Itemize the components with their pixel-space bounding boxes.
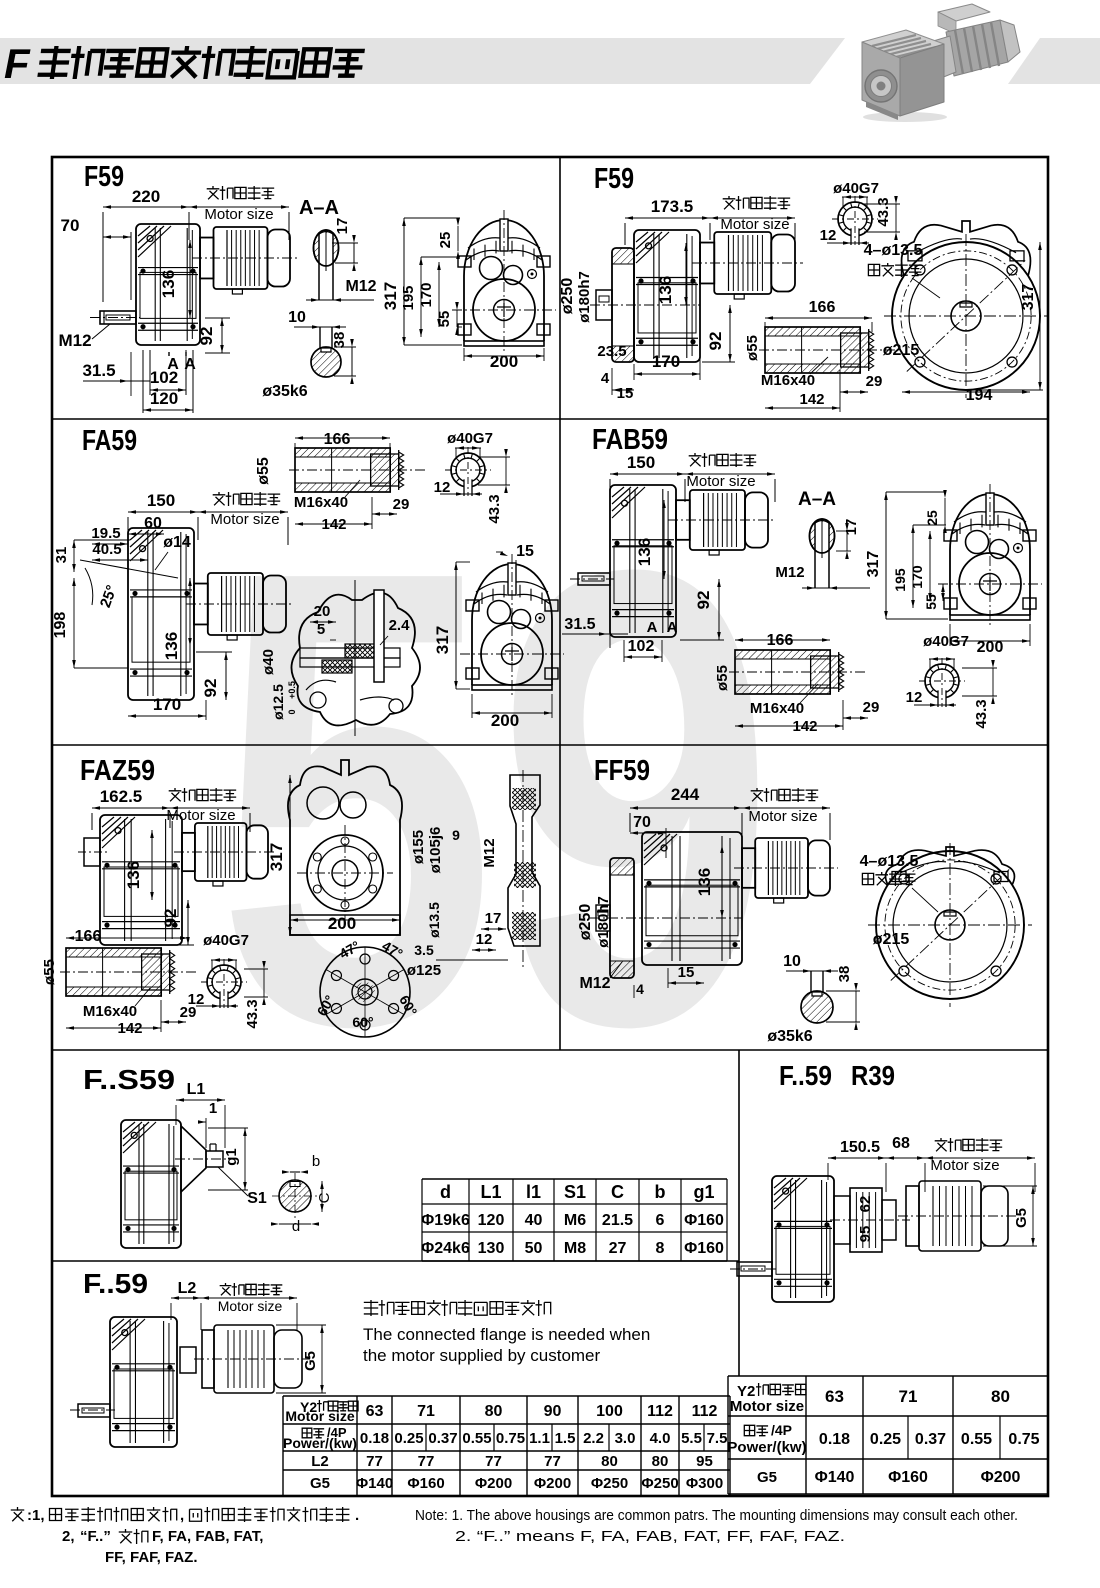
svg-text:ø125: ø125: [407, 962, 441, 979]
svg-text:ø40G7: ø40G7: [447, 430, 493, 447]
svg-text:77: 77: [418, 1453, 435, 1470]
svg-text:112: 112: [692, 1403, 718, 1420]
svg-text:b: b: [312, 1153, 320, 1170]
svg-text:200: 200: [491, 711, 519, 730]
svg-text:15: 15: [516, 543, 534, 560]
svg-text:92: 92: [706, 332, 725, 351]
svg-text:the motor supplied by customer: the motor supplied by customer: [363, 1346, 601, 1365]
svg-text:M16x40: M16x40: [761, 372, 815, 389]
svg-text:136: 136: [695, 868, 714, 896]
svg-text:70: 70: [61, 216, 80, 235]
svg-text:92: 92: [197, 327, 216, 346]
svg-text:15: 15: [617, 385, 634, 402]
svg-text:L2: L2: [178, 1280, 197, 1297]
svg-text:L1: L1: [480, 1182, 501, 1202]
svg-text:317: 317: [267, 843, 286, 871]
svg-text:G5: G5: [757, 1469, 777, 1486]
svg-text:77: 77: [366, 1453, 383, 1470]
svg-text:77: 77: [485, 1453, 502, 1470]
svg-text:6: 6: [656, 1212, 665, 1229]
svg-text::1,: :1,: [27, 1507, 45, 1524]
svg-text:31: 31: [53, 547, 70, 564]
svg-text:Motor size: Motor size: [730, 1398, 804, 1415]
svg-text:l1: l1: [526, 1182, 541, 1202]
svg-text:FA59: FA59: [82, 425, 137, 457]
svg-text:F, FA, FAB, FAT,: F, FA, FAB, FAT,: [152, 1528, 263, 1545]
svg-text:Motor size: Motor size: [748, 808, 817, 825]
svg-text:2.2: 2.2: [583, 1430, 604, 1447]
svg-text:0.75: 0.75: [496, 1430, 525, 1447]
svg-text:17: 17: [334, 218, 351, 235]
svg-text:2,: 2,: [62, 1528, 75, 1545]
svg-text:Φ160: Φ160: [684, 1212, 724, 1229]
svg-text:4: 4: [636, 981, 644, 997]
svg-text:F: F: [4, 40, 31, 87]
svg-text:27: 27: [609, 1240, 627, 1257]
svg-text:12: 12: [188, 991, 205, 1008]
svg-text:S1: S1: [247, 1190, 267, 1207]
svg-text:C: C: [316, 1192, 333, 1203]
svg-text:A: A: [184, 356, 196, 373]
svg-text:Power/(kw): Power/(kw): [727, 1439, 806, 1456]
svg-text:A: A: [167, 356, 179, 373]
svg-text:38: 38: [836, 966, 853, 983]
svg-text:A–A: A–A: [798, 489, 836, 510]
svg-text:77: 77: [544, 1453, 561, 1470]
svg-text:F..S59: F..S59: [83, 1064, 175, 1095]
svg-text:0.37: 0.37: [915, 1431, 946, 1448]
svg-text:ø55: ø55: [714, 665, 731, 691]
svg-text:43.3: 43.3: [244, 999, 261, 1028]
svg-text:Φ140: Φ140: [356, 1475, 393, 1492]
svg-text:F59: F59: [594, 163, 634, 195]
svg-text:80: 80: [485, 1403, 503, 1420]
svg-text:80: 80: [601, 1453, 618, 1470]
svg-text:195: 195: [400, 285, 417, 310]
svg-text:,: ,: [180, 1507, 184, 1524]
svg-text:ø215: ø215: [883, 342, 920, 359]
svg-text:166: 166: [324, 431, 351, 448]
svg-text:ø40: ø40: [260, 649, 277, 675]
svg-text:136: 136: [162, 632, 181, 660]
svg-text:FF, FAF, FAZ.: FF, FAF, FAZ.: [105, 1549, 198, 1566]
svg-text:Φ160: Φ160: [888, 1469, 928, 1486]
svg-text:198: 198: [52, 612, 69, 639]
svg-text:55: 55: [923, 594, 939, 610]
svg-text:120: 120: [478, 1212, 505, 1229]
svg-text:ø215: ø215: [873, 931, 910, 948]
svg-text:g1: g1: [693, 1182, 714, 1202]
svg-text:95: 95: [857, 1226, 874, 1243]
svg-text:142: 142: [799, 391, 824, 408]
svg-text:8: 8: [656, 1240, 665, 1257]
svg-text:20: 20: [314, 603, 331, 620]
svg-text:Motor size: Motor size: [210, 511, 279, 528]
svg-text:170: 170: [153, 695, 181, 714]
svg-text:M12: M12: [775, 564, 804, 581]
svg-text:130: 130: [478, 1240, 505, 1257]
svg-text:170: 170: [909, 565, 925, 589]
svg-text:d: d: [440, 1182, 451, 1202]
svg-text:Φ300: Φ300: [686, 1475, 723, 1492]
svg-text:Φ250: Φ250: [641, 1475, 678, 1492]
svg-text:Φ140: Φ140: [815, 1469, 855, 1486]
svg-text:0.25: 0.25: [394, 1430, 423, 1447]
svg-text:7.5: 7.5: [707, 1430, 728, 1447]
svg-text:ø55: ø55: [41, 959, 58, 985]
svg-text:5.5: 5.5: [681, 1430, 702, 1447]
svg-text:S1: S1: [564, 1182, 586, 1202]
svg-text:ø155: ø155: [410, 830, 427, 864]
svg-text:15: 15: [678, 964, 695, 981]
svg-text:3.5: 3.5: [414, 942, 434, 958]
svg-text:70: 70: [633, 814, 651, 831]
svg-text:M16x40: M16x40: [294, 494, 348, 511]
svg-text:.: .: [355, 1507, 359, 1524]
svg-text:M16x40: M16x40: [83, 1003, 137, 1020]
svg-text:92: 92: [694, 591, 713, 610]
svg-text:M12: M12: [481, 838, 498, 867]
svg-text:90: 90: [544, 1403, 562, 1420]
svg-text:120: 120: [150, 389, 178, 408]
svg-text:C: C: [611, 1182, 624, 1202]
svg-text:29: 29: [393, 496, 410, 513]
svg-text:FAB59: FAB59: [592, 424, 668, 456]
svg-text:Motor size: Motor size: [285, 1408, 354, 1424]
svg-text:Φ200: Φ200: [475, 1475, 512, 1492]
svg-text:12: 12: [906, 689, 923, 706]
svg-text:The connected flange is needed: The connected flange is needed when: [363, 1325, 650, 1344]
svg-text:17: 17: [485, 910, 502, 927]
svg-text:M12: M12: [345, 278, 376, 295]
svg-text:136: 136: [159, 270, 178, 298]
svg-text:317: 317: [1020, 284, 1037, 311]
svg-text:+0.5: +0.5: [287, 681, 297, 699]
svg-text:31.5: 31.5: [82, 361, 115, 380]
svg-text:d: d: [292, 1218, 300, 1235]
svg-text:92: 92: [201, 679, 220, 698]
svg-text:G5: G5: [302, 1351, 319, 1371]
svg-text:19.5: 19.5: [91, 525, 120, 542]
svg-text:F..59: F..59: [779, 1060, 832, 1091]
svg-text:63: 63: [825, 1387, 844, 1406]
svg-text:g1: g1: [223, 1148, 240, 1166]
svg-text:0.75: 0.75: [1008, 1431, 1039, 1448]
svg-text:L1: L1: [187, 1081, 206, 1098]
svg-text:25: 25: [437, 232, 454, 249]
svg-text:ø105j6: ø105j6: [427, 827, 444, 874]
svg-text:0: 0: [287, 709, 297, 714]
svg-text:95: 95: [696, 1453, 713, 1470]
svg-text:ø180h7: ø180h7: [576, 271, 593, 323]
svg-text:ø250: ø250: [577, 904, 594, 941]
svg-text:ø13.5: ø13.5: [426, 902, 442, 938]
svg-text:112: 112: [647, 1403, 673, 1420]
svg-text:ø55: ø55: [744, 335, 761, 361]
svg-text:Motor size: Motor size: [686, 473, 755, 490]
svg-text:1.1: 1.1: [529, 1430, 550, 1447]
svg-text:ø250: ø250: [559, 278, 576, 315]
svg-text:166: 166: [809, 299, 836, 316]
svg-text:12: 12: [434, 479, 451, 496]
svg-text:43.3: 43.3: [875, 197, 892, 226]
svg-text:170: 170: [652, 352, 680, 371]
svg-text:ø40G7: ø40G7: [833, 180, 879, 197]
svg-text:10: 10: [288, 309, 306, 326]
svg-text:63: 63: [366, 1403, 384, 1420]
svg-text:29: 29: [866, 373, 883, 390]
svg-text:M12: M12: [579, 975, 610, 992]
svg-text:71: 71: [899, 1387, 918, 1406]
svg-text:A–A: A–A: [299, 197, 339, 219]
svg-text:136: 136: [635, 538, 654, 566]
svg-text:60: 60: [144, 515, 162, 532]
svg-text:2. “F..” means F, FA, FAB, FA: 2. “F..” means F, FA, FAB, FAT, FF, FAF,…: [455, 1528, 845, 1545]
svg-text:Φ24k6: Φ24k6: [421, 1240, 470, 1257]
svg-text:Φ160: Φ160: [407, 1475, 444, 1492]
svg-text:12: 12: [820, 227, 837, 244]
svg-text:Motor size: Motor size: [204, 206, 273, 223]
svg-text:38: 38: [331, 332, 348, 349]
svg-text:17: 17: [843, 519, 860, 536]
svg-text:317: 317: [433, 626, 452, 654]
svg-text:ø55: ø55: [255, 457, 272, 485]
svg-text:80: 80: [991, 1387, 1010, 1406]
svg-text:Φ200: Φ200: [981, 1469, 1021, 1486]
svg-text:23.5: 23.5: [597, 343, 626, 360]
svg-text:71: 71: [417, 1403, 435, 1420]
svg-text:3.0: 3.0: [615, 1430, 636, 1447]
svg-text:ø14: ø14: [163, 534, 191, 551]
svg-text:5: 5: [317, 621, 325, 638]
svg-text:ø35k6: ø35k6: [262, 383, 307, 400]
svg-text:G5: G5: [1013, 1208, 1030, 1228]
svg-text:4: 4: [601, 370, 610, 387]
svg-text:0.55: 0.55: [961, 1431, 992, 1448]
svg-text:21.5: 21.5: [602, 1212, 633, 1229]
svg-text:40: 40: [525, 1212, 543, 1229]
svg-text:M12: M12: [58, 331, 91, 350]
svg-text:Power/(kw): Power/(kw): [283, 1435, 357, 1451]
svg-text:317: 317: [865, 551, 882, 578]
svg-text:ø12.5: ø12.5: [270, 684, 286, 720]
svg-text:FF59: FF59: [594, 755, 650, 787]
svg-text:102: 102: [628, 638, 655, 655]
svg-text:50: 50: [525, 1240, 543, 1257]
svg-text:173.5: 173.5: [651, 197, 694, 216]
svg-text:12: 12: [476, 931, 493, 948]
svg-text:0.18: 0.18: [360, 1430, 389, 1447]
svg-text:1: 1: [209, 1100, 217, 1117]
svg-text:166: 166: [75, 928, 102, 945]
svg-text:43.3: 43.3: [486, 494, 503, 523]
svg-text:ø35k6: ø35k6: [767, 1028, 812, 1045]
svg-text:F..59: F..59: [83, 1268, 148, 1299]
svg-text:Φ160: Φ160: [684, 1240, 724, 1257]
svg-text:M16x40: M16x40: [750, 700, 804, 717]
svg-text:100: 100: [596, 1403, 623, 1420]
svg-text:200: 200: [328, 914, 356, 933]
svg-text:170: 170: [418, 282, 435, 307]
svg-text:220: 220: [132, 187, 160, 206]
svg-text:Φ200: Φ200: [534, 1475, 571, 1492]
svg-text:68: 68: [892, 1135, 910, 1152]
svg-text:244: 244: [671, 785, 700, 804]
svg-text:80: 80: [652, 1453, 669, 1470]
svg-text:150: 150: [147, 491, 175, 510]
svg-text:4–ø13.5: 4–ø13.5: [864, 242, 923, 259]
svg-text:136: 136: [656, 276, 675, 304]
svg-text:M6: M6: [564, 1212, 586, 1229]
svg-text:60°: 60°: [352, 1014, 373, 1030]
svg-text:10: 10: [783, 953, 801, 970]
svg-text:25: 25: [924, 510, 940, 526]
svg-text:29: 29: [863, 699, 880, 716]
svg-text:1.5: 1.5: [555, 1430, 576, 1447]
svg-text:92: 92: [161, 909, 180, 928]
svg-text:G5: G5: [310, 1475, 330, 1492]
svg-text:b: b: [655, 1182, 666, 1202]
svg-text:A: A: [667, 619, 678, 636]
svg-text:Note: 1. The above housings a: Note: 1. The above housings are common p…: [415, 1507, 1018, 1524]
svg-text:40.5: 40.5: [92, 541, 121, 558]
svg-text:195: 195: [892, 568, 908, 592]
svg-text:0.37: 0.37: [428, 1430, 457, 1447]
svg-text:2.4: 2.4: [389, 617, 411, 634]
svg-text:150.5: 150.5: [840, 1139, 880, 1156]
svg-text:A: A: [647, 619, 658, 636]
svg-text:ø180h7: ø180h7: [595, 896, 612, 948]
svg-text:31.5: 31.5: [564, 616, 595, 633]
svg-text:Motor size: Motor size: [930, 1157, 999, 1174]
svg-text:ø40G7: ø40G7: [203, 932, 249, 949]
svg-text:F59: F59: [84, 161, 124, 193]
svg-text:150: 150: [627, 453, 655, 472]
svg-text:FAZ59: FAZ59: [80, 755, 155, 787]
svg-text:194: 194: [966, 387, 993, 404]
svg-text:Motor size: Motor size: [218, 1298, 283, 1314]
svg-text:/4P: /4P: [771, 1422, 792, 1438]
svg-text:“F..”: “F..”: [80, 1528, 111, 1545]
svg-text:162.5: 162.5: [100, 787, 143, 806]
svg-text:136: 136: [124, 861, 143, 889]
svg-text:62: 62: [857, 1196, 874, 1213]
svg-text:Φ250: Φ250: [591, 1475, 628, 1492]
svg-text:317: 317: [381, 282, 400, 310]
svg-text:200: 200: [490, 352, 518, 371]
svg-text:L2: L2: [311, 1453, 329, 1470]
svg-text:9: 9: [452, 827, 460, 843]
svg-text:0.25: 0.25: [870, 1431, 901, 1448]
svg-text:4.0: 4.0: [650, 1430, 671, 1447]
svg-text:55: 55: [436, 311, 453, 328]
svg-text:Φ19k6: Φ19k6: [421, 1212, 470, 1229]
svg-text:4–ø13.5: 4–ø13.5: [860, 853, 919, 870]
svg-text:43.3: 43.3: [973, 699, 990, 728]
svg-text:ø40G7: ø40G7: [923, 633, 969, 650]
svg-text:0.55: 0.55: [462, 1430, 491, 1447]
svg-text:0.18: 0.18: [819, 1431, 850, 1448]
svg-text:M8: M8: [564, 1240, 586, 1257]
svg-text:Motor size: Motor size: [720, 216, 789, 233]
svg-text:R39: R39: [851, 1060, 895, 1091]
